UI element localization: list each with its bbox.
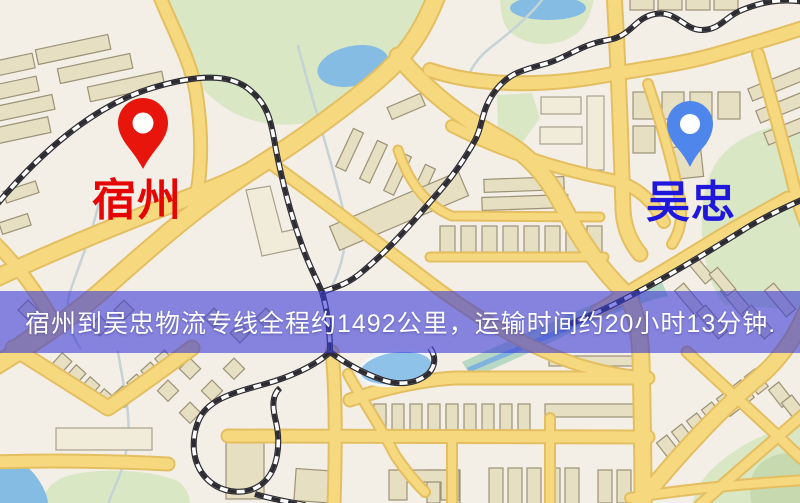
destination-label: 吴忠 xyxy=(646,181,736,225)
origin-label: 宿州 xyxy=(92,179,182,223)
route-info-banner: 宿州到吴忠物流专线全程约1492公里，运输时间约20小时13分钟. xyxy=(0,291,800,353)
origin-pin-hole xyxy=(133,113,154,134)
map-image[interactable]: 宿州 吴忠 宿州到吴忠物流专线全程约1492公里，运输时间约20小时13分钟. xyxy=(0,0,800,503)
route-info-text: 宿州到吴忠物流专线全程约1492公里，运输时间约20小时13分钟. xyxy=(0,304,776,340)
destination-pin-icon[interactable] xyxy=(664,95,716,167)
destination-pin-hole xyxy=(680,114,700,134)
map-canvas xyxy=(0,0,800,503)
origin-pin-icon[interactable] xyxy=(115,93,171,169)
